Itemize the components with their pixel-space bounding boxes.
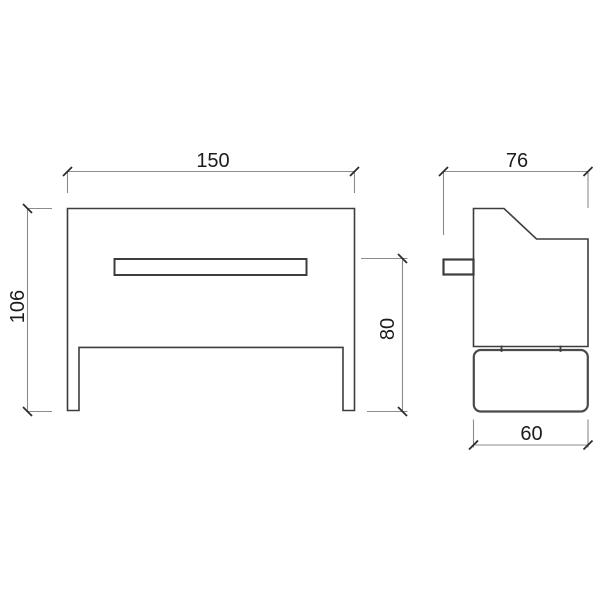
front-view [68,209,355,411]
dimension-labels: 150 106 80 76 60 [7,150,543,445]
dim-seat-height-label: 80 [377,318,399,340]
front-slot [115,259,307,275]
side-body-outline [474,209,589,347]
technical-drawing: 150 106 80 76 60 [0,0,600,600]
dim-front-width-line [68,172,355,194]
front-body-outline [68,209,355,411]
side-base [474,350,588,412]
dim-front-height-label: 106 [7,290,29,323]
dim-base-depth-label: 60 [520,423,542,445]
drawing-canvas: 150 106 80 76 60 [0,0,600,600]
side-view [444,209,589,412]
dim-front-width-label: 150 [196,150,229,172]
dimension-ticks [23,167,593,450]
dim-side-depth-line [444,172,589,236]
dimension-lines [28,172,589,448]
side-armrest-tab [444,260,474,275]
dim-side-depth-label: 76 [506,150,528,172]
dim-front-height-line [28,209,53,412]
